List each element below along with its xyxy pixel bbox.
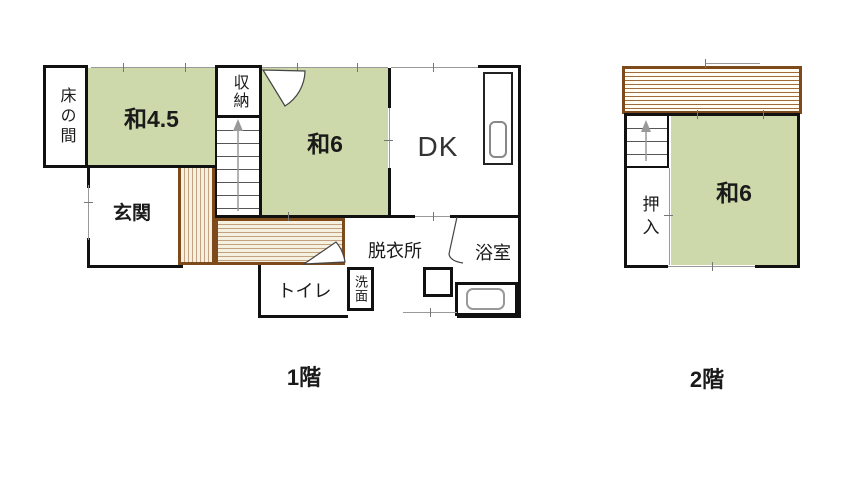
dimension-tick [664,215,673,216]
toilet-label: トイレ [278,277,332,303]
floor2-title: 2階 [672,364,742,392]
kitchen-sink [489,121,507,158]
dimension-tick [384,140,393,141]
dimension-tick [712,262,713,271]
storage-box: 収納 [215,65,262,118]
window-opening-line [389,108,390,168]
wall [388,68,391,108]
dining-kitchen-label: DK [418,131,459,163]
dimension-tick [288,212,289,221]
window-opening-line [88,185,89,240]
staircase-1f [215,118,262,218]
dimension-tick [357,63,358,72]
wall [518,65,521,318]
floor2-title-label: 2階 [690,362,724,394]
washing-machine-space [423,267,453,297]
wall [43,165,215,168]
toilet-room: トイレ [258,265,348,318]
dimension-tick [430,308,431,317]
floor-plan-canvas: 和4.5 和6 床の間 収納 玄関 DK 脱衣所 浴室 トイレ 洗面 [0,0,858,485]
closet-label: 押入 [637,195,662,241]
wall [345,215,415,218]
window-opening-line [262,67,388,68]
room-tatami-4-5: 和4.5 [88,68,215,165]
dimension-tick [84,202,93,203]
bathtub-inner [466,288,505,310]
balcony [622,66,802,114]
room-tokonoma-label: 床の間 [54,87,78,147]
floor1-title-label: 1階 [287,360,321,392]
entrance-label: 玄関 [113,198,151,225]
room-tokonoma: 床の間 [43,65,88,168]
room-tatami-6-1f-label: 和6 [307,125,343,159]
storage-box-label: 収納 [227,74,251,110]
floor1-title: 1階 [269,362,339,390]
dimension-tick [433,63,434,72]
wall [87,265,183,268]
corridor-horizontal [215,218,345,265]
washbasin-box: 洗面 [347,267,374,311]
dimension-tick [185,63,186,72]
corridor-vertical [178,165,215,265]
wall [87,238,90,268]
dimension-tick [297,63,298,72]
dimension-line [705,63,760,64]
dimension-tick [697,110,698,119]
entrance-area: 玄関 [90,198,174,224]
dining-kitchen-area: DK [396,132,480,162]
room-tatami-6-2f: 和6 [671,116,797,265]
staircase-2f [627,116,669,168]
room-tatami-4-5-label: 和4.5 [124,100,179,134]
bathroom-label: 浴室 [475,239,511,265]
dimension-tick [433,212,434,221]
room-tatami-6-2f-label: 和6 [716,174,752,208]
dressing-room-area: 脱衣所 [343,239,447,261]
wall [457,315,521,318]
wall [450,215,521,218]
dimension-tick [763,110,764,119]
closet-area: 押入 [629,180,669,255]
wall [388,168,391,218]
window-opening-line [91,67,215,68]
dressing-room-label: 脱衣所 [368,237,422,263]
wall [478,65,521,68]
room-tatami-6-1f: 和6 [262,68,388,215]
partition-line [669,168,670,265]
window-opening-line [391,67,478,68]
dimension-tick [123,63,124,72]
wall [215,215,345,218]
dimension-tick [705,59,706,68]
washbasin-label: 洗面 [351,275,370,303]
